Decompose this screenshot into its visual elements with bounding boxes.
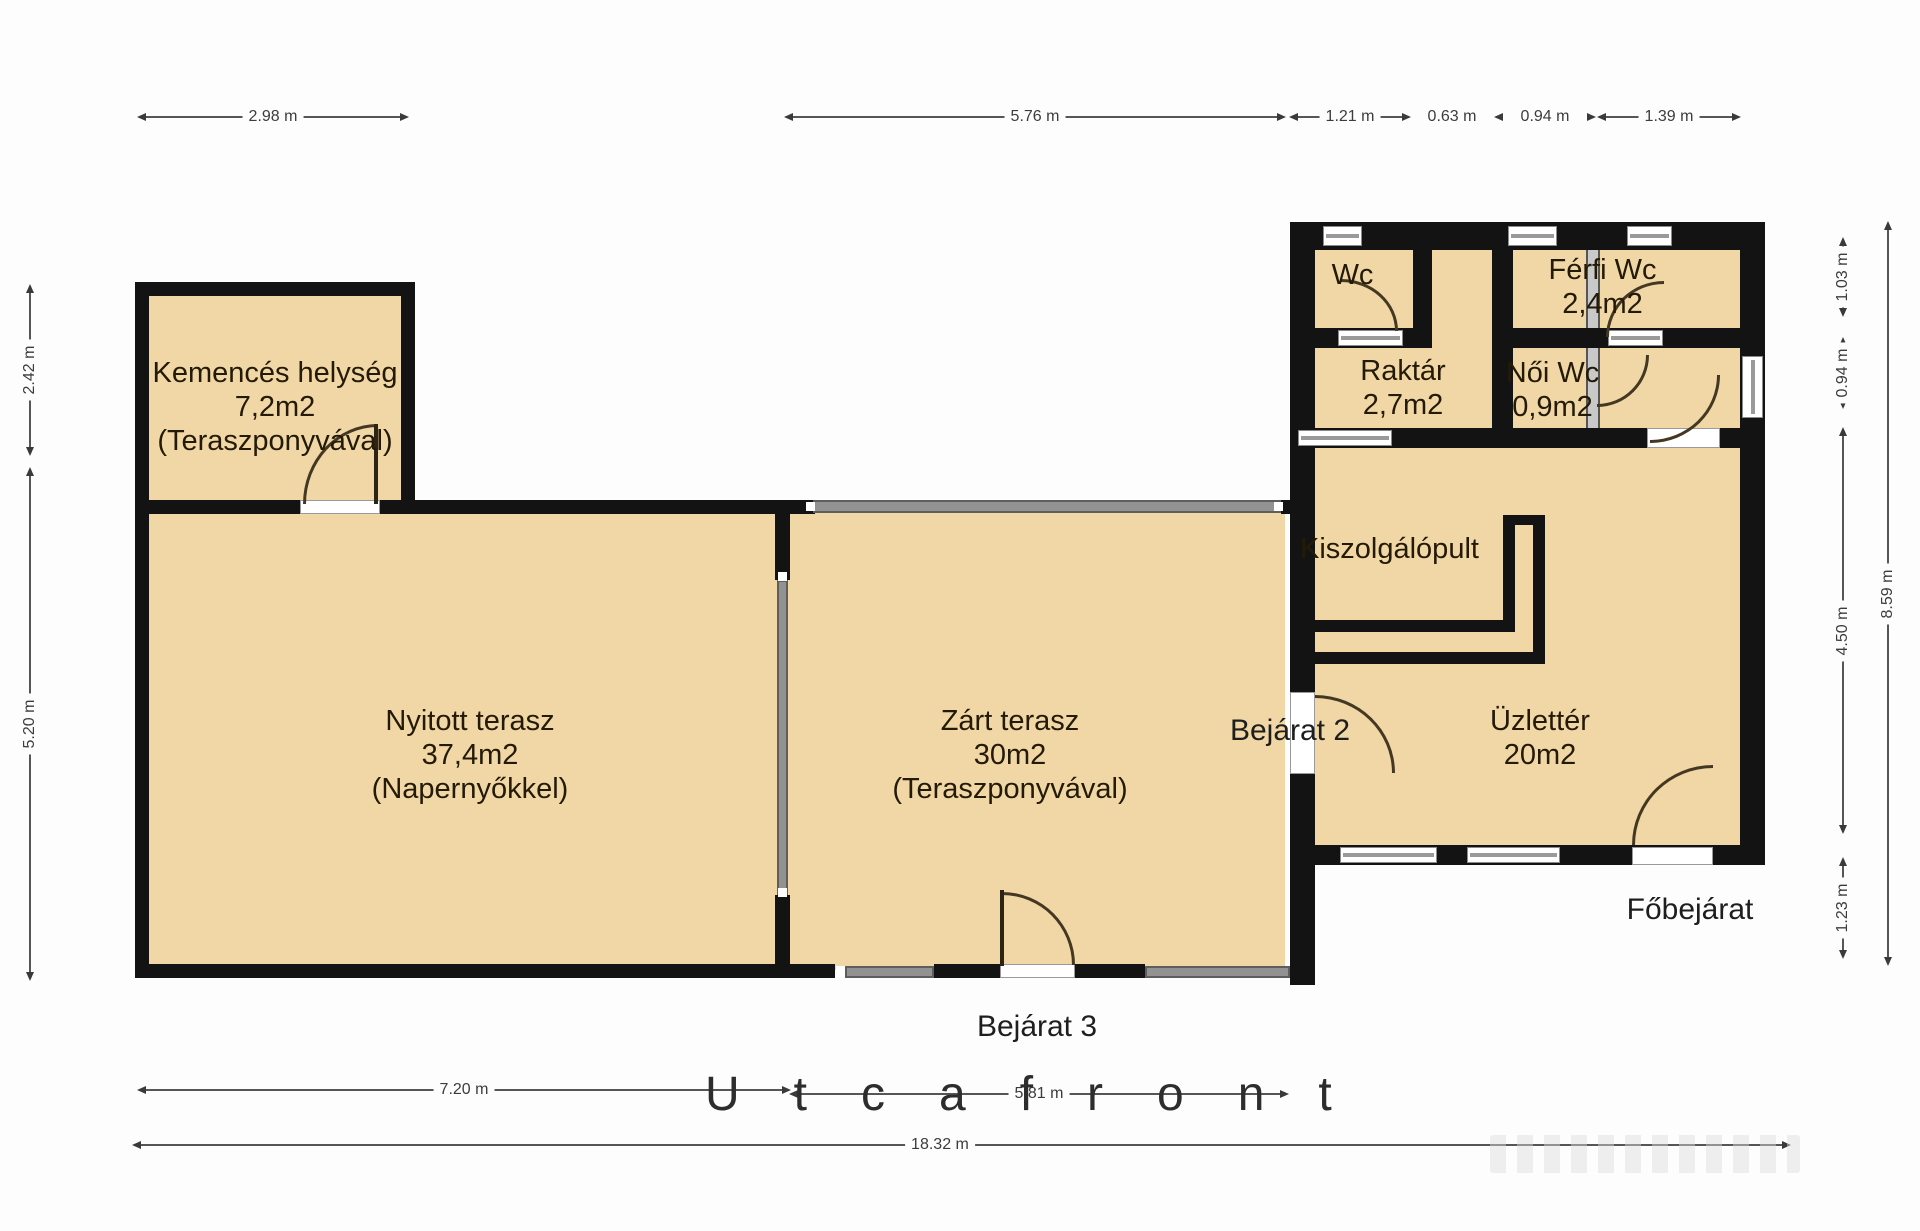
dim-label: 18.32 m — [905, 1136, 975, 1154]
room-note: (Teraszponyvával) — [130, 424, 420, 458]
counter — [1315, 652, 1545, 664]
room-label-noi-wc: Női Wc 0,9m2 — [1490, 356, 1615, 424]
room-area: 30m2 — [850, 738, 1170, 772]
dim-right-4: 1.23 m — [1836, 858, 1850, 958]
dim-top-2: 5.76 m — [785, 110, 1285, 124]
dim-label: 5.76 m — [1005, 108, 1066, 126]
room-label-wc: Wc — [1315, 258, 1390, 292]
glazing — [845, 966, 934, 978]
dim-top-1: 2.98 m — [138, 110, 408, 124]
dim-top-6: 1.39 m — [1598, 110, 1740, 124]
counter — [1503, 515, 1545, 525]
dim-top-4: 0.63 m — [1412, 110, 1492, 124]
dim-left-2: 5.20 m — [23, 468, 37, 980]
window — [1467, 847, 1560, 863]
wall — [1740, 222, 1765, 865]
room-label-raktar: Raktár 2,7m2 — [1318, 354, 1488, 422]
wall — [1290, 222, 1315, 985]
room-area: 7,2m2 — [130, 390, 420, 424]
room-area: 2,4m2 — [1505, 287, 1700, 321]
dim-label: 8.59 m — [1879, 563, 1897, 624]
room-area: 20m2 — [1435, 738, 1645, 772]
room-note: (Teraszponyvával) — [850, 772, 1170, 806]
wall — [135, 500, 790, 514]
counter — [1315, 620, 1515, 632]
floor-plan: Kemencés helység 7,2m2 (Teraszponyvával)… — [0, 0, 1920, 1231]
room-label-kemences: Kemencés helység 7,2m2 (Teraszponyvával) — [130, 356, 420, 458]
room-name: Üzlettér — [1435, 704, 1645, 738]
room-area: 37,4m2 — [310, 738, 630, 772]
dim-label: 4.50 m — [1834, 600, 1852, 661]
junction-dot — [836, 966, 845, 975]
door-leaf — [1000, 890, 1004, 966]
dim-right-3: 4.50 m — [1836, 428, 1850, 833]
dim-label: 5.20 m — [21, 694, 39, 755]
dim-bottom-1: 7.20 m — [138, 1083, 790, 1097]
dim-top-5: 0.94 m — [1495, 110, 1595, 124]
junction-dot — [806, 502, 815, 511]
room-label-ferfi-wc: Férfi Wc 2,4m2 — [1505, 253, 1700, 321]
dim-label: 2.98 m — [243, 108, 304, 126]
window — [1340, 847, 1437, 863]
room-label-zart-terasz: Zárt terasz 30m2 (Teraszponyvával) — [850, 704, 1170, 806]
room-label-kiszolgalopult: Kiszolgálópult — [1300, 532, 1510, 566]
room-name: Wc — [1315, 258, 1390, 292]
window — [1508, 226, 1557, 246]
room-label-uzletter: Üzlettér 20m2 — [1435, 704, 1645, 772]
door-opening-fobejarat — [1632, 847, 1713, 865]
room-area: 2,7m2 — [1318, 388, 1488, 422]
room-name: Férfi Wc — [1505, 253, 1700, 287]
glazing — [1145, 966, 1290, 978]
dim-label: 1.23 m — [1834, 878, 1852, 939]
street-label: Utcafront — [705, 1067, 1386, 1122]
label-fobejarat: Főbejárat — [1565, 893, 1815, 927]
counter — [1533, 515, 1545, 664]
dim-label: 1.21 m — [1320, 108, 1381, 126]
dim-label: 1.39 m — [1639, 108, 1700, 126]
dim-right-2: 0.94 m — [1836, 338, 1850, 408]
wall — [135, 282, 415, 296]
wall — [1075, 964, 1145, 978]
room-name: Raktár — [1318, 354, 1488, 388]
wall — [1720, 428, 1740, 448]
sliding-door — [1298, 430, 1392, 446]
glazing — [813, 500, 1283, 513]
window — [1338, 330, 1403, 346]
junction-dot — [778, 888, 787, 897]
dim-label: 0.63 m — [1422, 108, 1483, 126]
label-bejarat2: Bejárat 2 — [1165, 714, 1415, 748]
room-name: Kiszolgálópult — [1300, 532, 1510, 566]
room-name: Kemencés helység — [130, 356, 420, 390]
wall — [135, 500, 149, 978]
dim-label: 1.03 m — [1834, 247, 1852, 308]
label-bejarat3: Bejárat 3 — [912, 1010, 1162, 1044]
room-label-nyitott-terasz: Nyitott terasz 37,4m2 (Napernyőkkel) — [310, 704, 630, 806]
room-name: Nyitott terasz — [310, 704, 630, 738]
window — [1323, 226, 1362, 246]
dim-label: 2.42 m — [21, 340, 39, 401]
door-opening-bejarat3 — [1000, 964, 1075, 978]
dim-right-1: 1.03 m — [1836, 238, 1850, 316]
glazing — [777, 580, 788, 895]
dim-label: 7.20 m — [434, 1081, 495, 1099]
dim-top-3: 1.21 m — [1290, 110, 1410, 124]
window — [1742, 356, 1763, 418]
room-area: 0,9m2 — [1490, 390, 1615, 424]
dim-label: 0.94 m — [1515, 108, 1576, 126]
dim-left-1: 2.42 m — [23, 285, 37, 455]
wall — [135, 964, 835, 978]
wall — [775, 500, 790, 580]
wall — [775, 895, 790, 978]
junction-dot — [778, 572, 787, 581]
window — [1627, 226, 1672, 246]
room-name: Női Wc — [1490, 356, 1615, 390]
dim-right-5: 8.59 m — [1881, 222, 1895, 965]
room-note: (Napernyőkkel) — [310, 772, 630, 806]
room-name: Zárt terasz — [850, 704, 1170, 738]
wall — [934, 964, 1000, 978]
junction-dot — [1274, 502, 1283, 511]
watermark — [1490, 1135, 1800, 1173]
dim-label: 0.94 m — [1834, 343, 1852, 404]
